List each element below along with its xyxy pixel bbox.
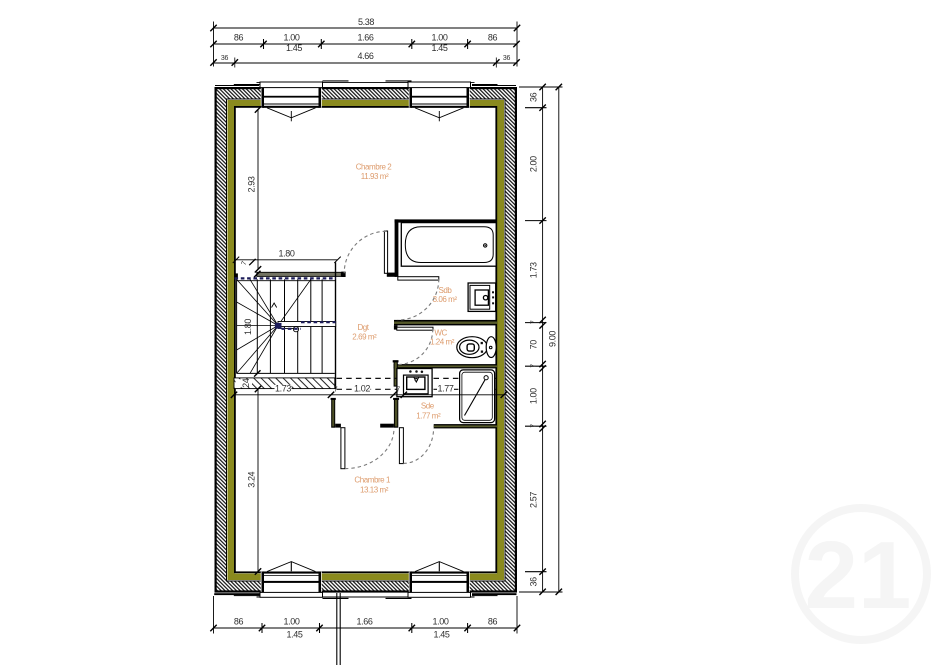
svg-text:36: 36 bbox=[529, 92, 539, 102]
svg-text:1.00: 1.00 bbox=[284, 617, 300, 627]
svg-text:Sdb: Sdb bbox=[439, 286, 453, 295]
svg-text:WC: WC bbox=[434, 329, 447, 338]
svg-text:4.66: 4.66 bbox=[358, 51, 374, 61]
svg-text:2.00: 2.00 bbox=[529, 156, 539, 172]
svg-text:5.38: 5.38 bbox=[358, 17, 374, 27]
svg-text:86: 86 bbox=[234, 33, 244, 43]
svg-text:36: 36 bbox=[503, 55, 511, 62]
svg-text:Chambre 1: Chambre 1 bbox=[354, 475, 391, 484]
svg-text:9.00: 9.00 bbox=[548, 331, 558, 347]
svg-text:86: 86 bbox=[234, 617, 244, 627]
svg-text:3.24: 3.24 bbox=[247, 471, 257, 487]
svg-text:1.02: 1.02 bbox=[354, 384, 370, 394]
svg-text:2.93: 2.93 bbox=[247, 176, 257, 192]
svg-text:Chambre 2: Chambre 2 bbox=[356, 163, 393, 172]
svg-text:86: 86 bbox=[488, 617, 498, 627]
svg-text:1.24 m²: 1.24 m² bbox=[430, 338, 455, 347]
svg-text:70: 70 bbox=[529, 340, 539, 350]
svg-text:1.45: 1.45 bbox=[434, 630, 450, 640]
svg-text:7: 7 bbox=[334, 387, 338, 394]
svg-text:13.13 m²: 13.13 m² bbox=[360, 486, 389, 495]
svg-text:1.73: 1.73 bbox=[529, 262, 539, 278]
svg-text:1.66: 1.66 bbox=[357, 617, 373, 627]
svg-text:3.06 m²: 3.06 m² bbox=[433, 295, 458, 304]
svg-text:7: 7 bbox=[531, 320, 538, 324]
svg-text:1.45: 1.45 bbox=[432, 43, 448, 53]
svg-text:36: 36 bbox=[221, 55, 229, 62]
svg-text:1.00: 1.00 bbox=[433, 617, 449, 627]
svg-text:36: 36 bbox=[529, 577, 539, 587]
svg-text:1.80: 1.80 bbox=[243, 319, 253, 335]
svg-text:2.57: 2.57 bbox=[529, 492, 539, 508]
svg-text:21: 21 bbox=[805, 522, 912, 629]
svg-text:1.77 m²: 1.77 m² bbox=[416, 412, 441, 421]
svg-text:Dgt: Dgt bbox=[357, 323, 369, 332]
svg-text:2.69 m²: 2.69 m² bbox=[352, 333, 377, 342]
svg-text:1.45: 1.45 bbox=[287, 630, 303, 640]
svg-text:1.73: 1.73 bbox=[275, 384, 291, 394]
svg-text:24: 24 bbox=[241, 378, 251, 388]
svg-text:Sde: Sde bbox=[421, 401, 435, 410]
svg-text:1.66: 1.66 bbox=[358, 33, 374, 43]
svg-text:1.80: 1.80 bbox=[279, 249, 295, 259]
svg-text:1.45: 1.45 bbox=[286, 43, 302, 53]
svg-text:1.00: 1.00 bbox=[529, 388, 539, 404]
svg-text:1.00: 1.00 bbox=[432, 33, 448, 43]
svg-text:7: 7 bbox=[396, 387, 400, 394]
svg-text:11.93 m²: 11.93 m² bbox=[361, 172, 389, 181]
svg-text:1.00: 1.00 bbox=[284, 33, 300, 43]
svg-text:7: 7 bbox=[531, 364, 538, 368]
svg-text:1.77: 1.77 bbox=[438, 384, 454, 394]
svg-text:86: 86 bbox=[488, 33, 498, 43]
svg-text:7: 7 bbox=[531, 424, 538, 428]
